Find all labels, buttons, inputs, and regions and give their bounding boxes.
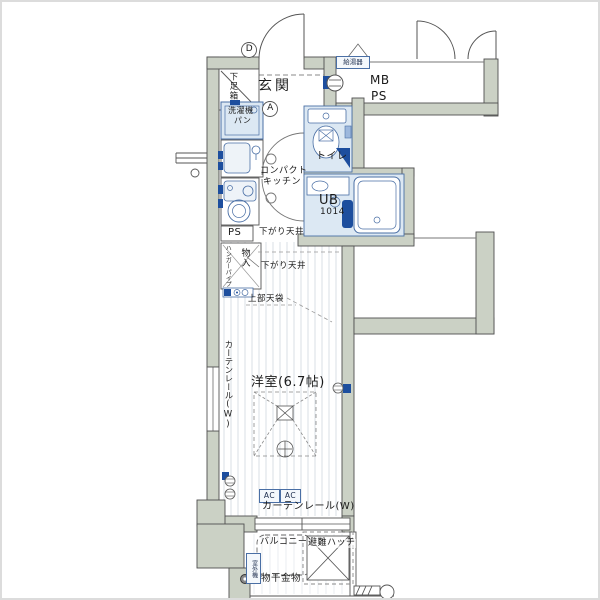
meter-icon bbox=[323, 75, 343, 91]
window-icon-left bbox=[207, 367, 219, 431]
drain-and-divider-icon bbox=[354, 585, 394, 599]
storage-label: 物入 bbox=[239, 248, 248, 268]
washer-pan-label-2: パン bbox=[234, 117, 251, 125]
laundry-hardware-label: 物干金物 bbox=[261, 574, 301, 584]
pipe-space-top-label: PS bbox=[371, 90, 387, 103]
unit-bath-size-label: 1014 bbox=[320, 208, 345, 217]
lowered-ceiling-label-1: 下がり天井 bbox=[259, 228, 304, 237]
kitchen-sink-icon bbox=[218, 140, 263, 177]
western-room-label: 洋室(6.7帖) bbox=[251, 376, 325, 390]
kitchen-label-1: コンパクト bbox=[260, 167, 308, 176]
door-marker-d: D bbox=[243, 45, 256, 54]
toilet-label: トイレ bbox=[316, 152, 348, 163]
balcony-label: バルコニー bbox=[260, 538, 307, 547]
entrance-door-icon bbox=[259, 14, 304, 59]
pipe-space-mid-label: PS bbox=[228, 228, 241, 239]
floor-plan-canvas: D A 玄関 下足箱 給湯器 MB PS 洗濯機 パン トイレ コンパクト キッ… bbox=[0, 0, 600, 600]
door-marker-a: A bbox=[264, 104, 277, 113]
hanger-pipe-label: ハンガーパイプ bbox=[224, 245, 230, 287]
genkan-label: 玄関 bbox=[258, 79, 292, 94]
curtain-rail-bottom-label: カーテンレール(W) bbox=[262, 502, 355, 513]
lowered-ceiling-label-2: 下がり天井 bbox=[261, 262, 306, 271]
upper-cabinet-label: 上部天袋 bbox=[248, 295, 284, 304]
ceiling-light-icon bbox=[254, 392, 316, 457]
pipe-vent-icon bbox=[176, 153, 207, 177]
unit-bath-label: UB bbox=[319, 194, 338, 208]
mbps-door-icon bbox=[417, 21, 496, 59]
kitchen-label-2: キッチン bbox=[263, 178, 301, 187]
window-icon-bottom bbox=[255, 518, 350, 530]
curtain-rail-left-label: カーテンレール(W) bbox=[223, 340, 232, 430]
outlet-icon-right bbox=[333, 383, 351, 393]
evacuation-hatch-label: 避難ハッチ bbox=[308, 539, 356, 548]
outdoor-unit-label: 室外機 bbox=[246, 553, 261, 584]
washer-pan-label-1: 洗濯機 bbox=[228, 107, 254, 115]
meter-box-label: MB bbox=[370, 74, 390, 87]
stove-icon bbox=[218, 178, 259, 225]
shoe-box-label: 下足箱 bbox=[228, 72, 237, 101]
water-heater-label: 給湯器 bbox=[336, 56, 370, 69]
